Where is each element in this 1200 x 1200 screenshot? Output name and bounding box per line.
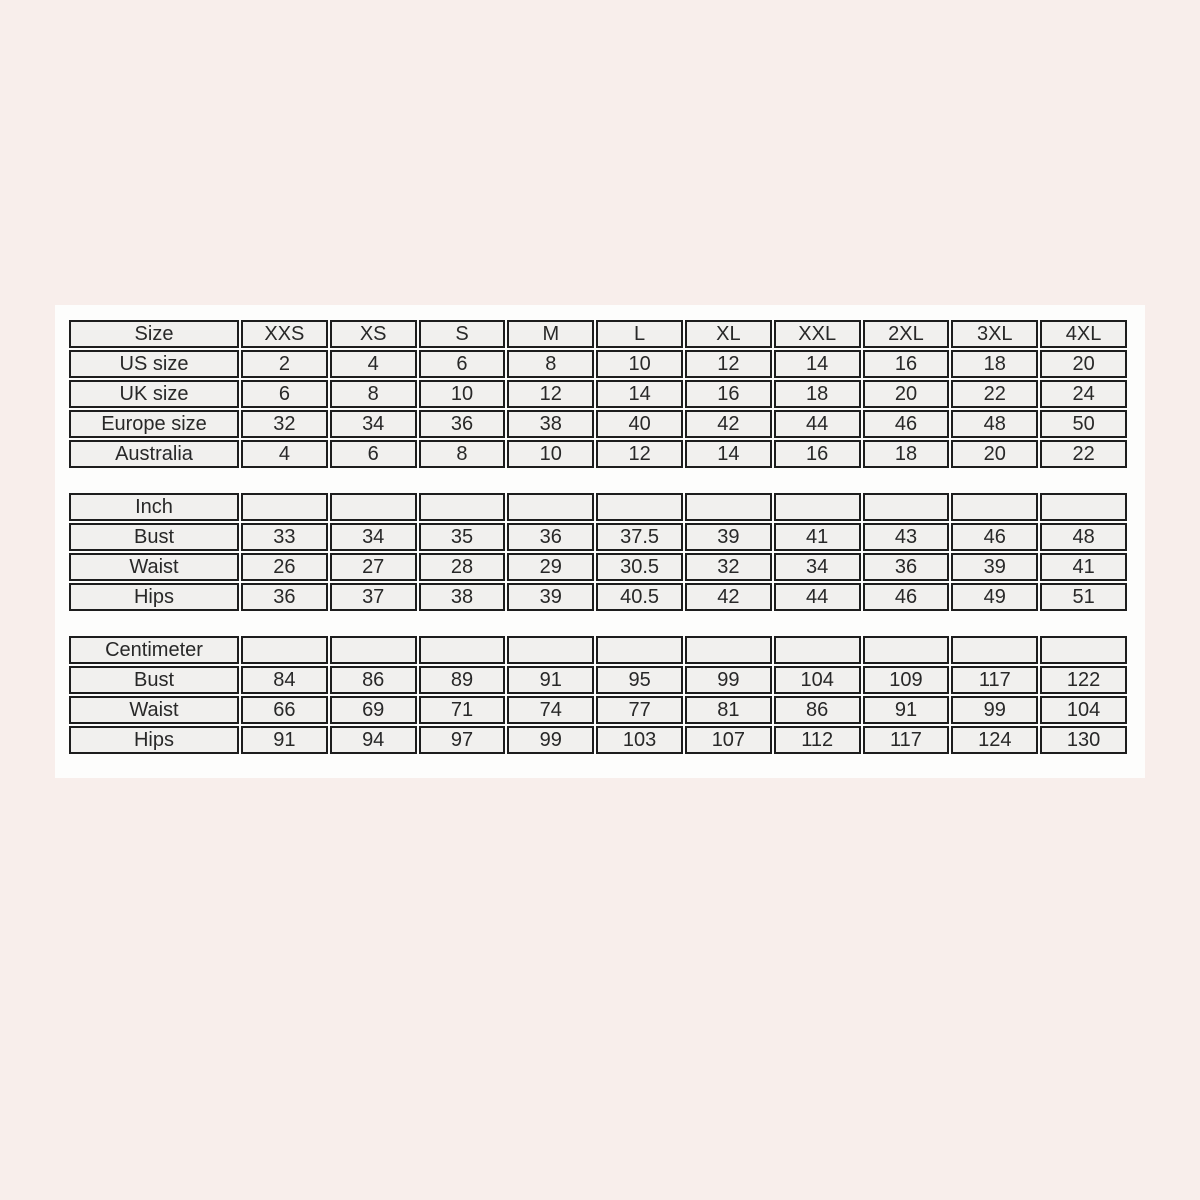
value-cell: 14: [774, 350, 861, 378]
column-header-cell: [241, 636, 328, 664]
value-cell: 14: [596, 380, 683, 408]
table-header-row: SizeXXSXSSMLXLXXL2XL3XL4XL: [69, 320, 1127, 348]
value-cell: 18: [774, 380, 861, 408]
value-cell: 34: [774, 553, 861, 581]
value-cell: 22: [951, 380, 1038, 408]
value-cell: 48: [1040, 523, 1127, 551]
value-cell: 10: [596, 350, 683, 378]
value-cell: 12: [596, 440, 683, 468]
value-cell: 91: [507, 666, 594, 694]
value-cell: 30.5: [596, 553, 683, 581]
value-cell: 48: [951, 410, 1038, 438]
value-cell: 89: [419, 666, 506, 694]
value-cell: 109: [863, 666, 950, 694]
table-row: Bust848689919599104109117122: [69, 666, 1127, 694]
value-cell: 26: [241, 553, 328, 581]
value-cell: 38: [507, 410, 594, 438]
size-chart-panel: SizeXXSXSSMLXLXXL2XL3XL4XLUS size2468101…: [55, 305, 1145, 778]
value-cell: 44: [774, 583, 861, 611]
value-cell: 34: [330, 410, 417, 438]
table-row: Australia46810121416182022: [69, 440, 1127, 468]
value-cell: 104: [1040, 696, 1127, 724]
column-header-cell: 2XL: [863, 320, 950, 348]
table-row: Waist2627282930.53234363941: [69, 553, 1127, 581]
value-cell: 99: [685, 666, 772, 694]
value-cell: 130: [1040, 726, 1127, 754]
column-header-cell: [774, 493, 861, 521]
value-cell: 24: [1040, 380, 1127, 408]
row-label-cell: UK size: [69, 380, 239, 408]
value-cell: 50: [1040, 410, 1127, 438]
column-header-cell: 4XL: [1040, 320, 1127, 348]
value-cell: 41: [1040, 553, 1127, 581]
value-cell: 44: [774, 410, 861, 438]
value-cell: 6: [419, 350, 506, 378]
value-cell: 74: [507, 696, 594, 724]
value-cell: 49: [951, 583, 1038, 611]
value-cell: 43: [863, 523, 950, 551]
value-cell: 37: [330, 583, 417, 611]
column-header-cell: [685, 636, 772, 664]
value-cell: 34: [330, 523, 417, 551]
value-cell: 104: [774, 666, 861, 694]
column-header-cell: [1040, 493, 1127, 521]
column-header-cell: [863, 636, 950, 664]
value-cell: 12: [507, 380, 594, 408]
column-header-cell: [863, 493, 950, 521]
value-cell: 117: [863, 726, 950, 754]
value-cell: 46: [863, 583, 950, 611]
row-label-cell: Waist: [69, 553, 239, 581]
value-cell: 122: [1040, 666, 1127, 694]
table-header-label-cell: Size: [69, 320, 239, 348]
table-row: Waist666971747781869199104: [69, 696, 1127, 724]
value-cell: 46: [951, 523, 1038, 551]
value-cell: 6: [241, 380, 328, 408]
value-cell: 20: [1040, 350, 1127, 378]
value-cell: 99: [951, 696, 1038, 724]
value-cell: 37.5: [596, 523, 683, 551]
row-label-cell: Bust: [69, 523, 239, 551]
value-cell: 22: [1040, 440, 1127, 468]
column-header-cell: [241, 493, 328, 521]
row-label-cell: US size: [69, 350, 239, 378]
column-header-cell: [1040, 636, 1127, 664]
value-cell: 39: [507, 583, 594, 611]
value-cell: 12: [685, 350, 772, 378]
value-cell: 66: [241, 696, 328, 724]
column-header-cell: [419, 636, 506, 664]
value-cell: 97: [419, 726, 506, 754]
table-row: US size2468101214161820: [69, 350, 1127, 378]
value-cell: 117: [951, 666, 1038, 694]
value-cell: 94: [330, 726, 417, 754]
value-cell: 39: [951, 553, 1038, 581]
column-header-cell: XL: [685, 320, 772, 348]
value-cell: 4: [241, 440, 328, 468]
value-cell: 2: [241, 350, 328, 378]
value-cell: 124: [951, 726, 1038, 754]
value-cell: 32: [685, 553, 772, 581]
column-header-cell: XXS: [241, 320, 328, 348]
value-cell: 39: [685, 523, 772, 551]
value-cell: 18: [951, 350, 1038, 378]
table-header-label-cell: Inch: [69, 493, 239, 521]
value-cell: 6: [330, 440, 417, 468]
value-cell: 16: [863, 350, 950, 378]
value-cell: 8: [419, 440, 506, 468]
value-cell: 41: [774, 523, 861, 551]
value-cell: 36: [419, 410, 506, 438]
value-cell: 10: [507, 440, 594, 468]
table-row: Europe size32343638404244464850: [69, 410, 1127, 438]
column-header-cell: [951, 493, 1038, 521]
value-cell: 69: [330, 696, 417, 724]
value-cell: 10: [419, 380, 506, 408]
value-cell: 81: [685, 696, 772, 724]
value-cell: 28: [419, 553, 506, 581]
column-header-cell: [596, 493, 683, 521]
value-cell: 16: [685, 380, 772, 408]
inch-measurements-table: InchBust3334353637.53941434648Waist26272…: [67, 491, 1129, 613]
column-header-cell: [507, 636, 594, 664]
value-cell: 20: [863, 380, 950, 408]
size-conversion-table: SizeXXSXSSMLXLXXL2XL3XL4XLUS size2468101…: [67, 318, 1129, 470]
column-header-cell: M: [507, 320, 594, 348]
column-header-cell: XS: [330, 320, 417, 348]
table-row: UK size681012141618202224: [69, 380, 1127, 408]
value-cell: 91: [241, 726, 328, 754]
column-header-cell: [330, 636, 417, 664]
value-cell: 35: [419, 523, 506, 551]
table-header-row: Inch: [69, 493, 1127, 521]
row-label-cell: Australia: [69, 440, 239, 468]
value-cell: 40.5: [596, 583, 683, 611]
row-label-cell: Bust: [69, 666, 239, 694]
value-cell: 16: [774, 440, 861, 468]
row-label-cell: Europe size: [69, 410, 239, 438]
value-cell: 8: [330, 380, 417, 408]
value-cell: 20: [951, 440, 1038, 468]
value-cell: 86: [330, 666, 417, 694]
centimeter-measurements-table: CentimeterBust848689919599104109117122Wa…: [67, 634, 1129, 756]
value-cell: 95: [596, 666, 683, 694]
row-label-cell: Hips: [69, 583, 239, 611]
column-header-cell: [419, 493, 506, 521]
table-header-row: Centimeter: [69, 636, 1127, 664]
table-header-label-cell: Centimeter: [69, 636, 239, 664]
value-cell: 42: [685, 583, 772, 611]
column-header-cell: [596, 636, 683, 664]
value-cell: 103: [596, 726, 683, 754]
column-header-cell: [330, 493, 417, 521]
table-row: Bust3334353637.53941434648: [69, 523, 1127, 551]
column-header-cell: [507, 493, 594, 521]
value-cell: 51: [1040, 583, 1127, 611]
value-cell: 8: [507, 350, 594, 378]
column-header-cell: 3XL: [951, 320, 1038, 348]
value-cell: 36: [241, 583, 328, 611]
value-cell: 91: [863, 696, 950, 724]
column-header-cell: [951, 636, 1038, 664]
value-cell: 46: [863, 410, 950, 438]
column-header-cell: S: [419, 320, 506, 348]
value-cell: 86: [774, 696, 861, 724]
value-cell: 84: [241, 666, 328, 694]
value-cell: 4: [330, 350, 417, 378]
value-cell: 18: [863, 440, 950, 468]
value-cell: 107: [685, 726, 772, 754]
column-header-cell: [774, 636, 861, 664]
value-cell: 29: [507, 553, 594, 581]
value-cell: 38: [419, 583, 506, 611]
column-header-cell: XXL: [774, 320, 861, 348]
column-header-cell: L: [596, 320, 683, 348]
value-cell: 40: [596, 410, 683, 438]
value-cell: 14: [685, 440, 772, 468]
row-label-cell: Hips: [69, 726, 239, 754]
value-cell: 71: [419, 696, 506, 724]
value-cell: 32: [241, 410, 328, 438]
value-cell: 27: [330, 553, 417, 581]
row-label-cell: Waist: [69, 696, 239, 724]
table-row: Hips91949799103107112117124130: [69, 726, 1127, 754]
column-header-cell: [685, 493, 772, 521]
value-cell: 36: [507, 523, 594, 551]
value-cell: 112: [774, 726, 861, 754]
table-row: Hips3637383940.54244464951: [69, 583, 1127, 611]
value-cell: 99: [507, 726, 594, 754]
value-cell: 36: [863, 553, 950, 581]
value-cell: 77: [596, 696, 683, 724]
value-cell: 33: [241, 523, 328, 551]
value-cell: 42: [685, 410, 772, 438]
